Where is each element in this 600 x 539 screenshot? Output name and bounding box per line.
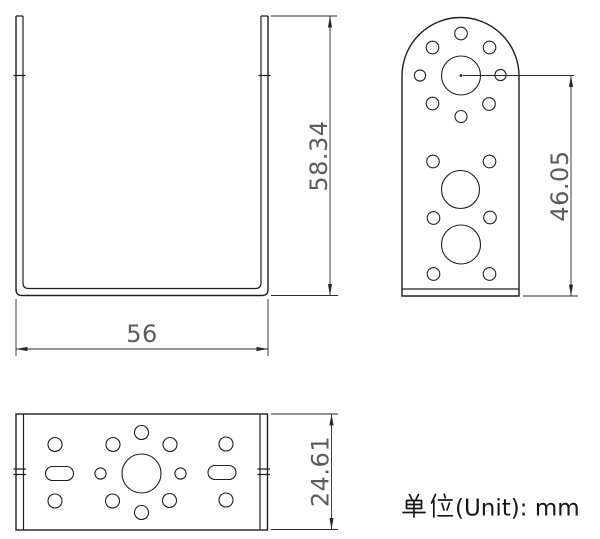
small-hole	[455, 111, 467, 123]
arrow-down-icon	[328, 284, 332, 296]
small-hole	[163, 494, 177, 508]
small-hole	[135, 426, 149, 440]
small-hole	[219, 437, 233, 451]
side-top-hole-pattern	[414, 27, 506, 122]
slot-hole	[208, 466, 236, 480]
arrow-up-icon	[569, 76, 573, 88]
drawing-svg: 58.34 56	[0, 0, 600, 539]
large-hole	[442, 171, 480, 209]
small-hole	[414, 70, 425, 81]
top-depth-dimension: 24.61	[271, 414, 338, 530]
unit-cjk-char-wei	[432, 494, 453, 517]
unit-note: (Unit): mm	[403, 494, 580, 521]
technical-drawing-sheet: 58.34 56	[0, 0, 600, 539]
small-hole	[95, 468, 106, 479]
small-hole	[106, 438, 120, 452]
small-hole	[484, 211, 497, 224]
large-hole	[122, 454, 161, 493]
front-inner-outline	[23, 16, 261, 289]
front-view	[14, 16, 271, 296]
top-wall-inner-lines	[24, 414, 261, 530]
side-height-dimension: 46.05	[463, 76, 578, 297]
side-outline	[402, 18, 519, 297]
front-width-dimension: 56	[16, 299, 268, 356]
side-height-value: 46.05	[546, 150, 574, 221]
small-hole	[48, 438, 62, 452]
small-hole	[426, 41, 439, 54]
top-outer-outline	[16, 414, 268, 530]
front-height-value: 58.34	[305, 120, 333, 191]
top-depth-value: 24.61	[307, 436, 335, 507]
small-hole	[483, 155, 496, 168]
small-hole	[427, 268, 440, 281]
small-hole	[175, 468, 186, 479]
arrow-left-icon	[16, 347, 28, 351]
small-hole	[219, 493, 233, 507]
arrow-down-icon	[569, 285, 573, 297]
top-side-holes	[46, 437, 237, 508]
side-view	[402, 18, 519, 297]
front-height-dimension: 58.34	[271, 16, 338, 296]
top-view	[14, 414, 271, 530]
unit-cjk-char-dan	[403, 495, 425, 518]
center-mark	[460, 74, 463, 77]
arrow-down-icon	[329, 518, 333, 530]
small-hole	[135, 506, 149, 520]
front-outer-outline	[16, 16, 268, 296]
small-hole	[483, 98, 496, 111]
arrow-right-icon	[257, 347, 269, 351]
arrow-up-icon	[328, 16, 332, 28]
slot-hole	[46, 467, 74, 481]
small-hole	[427, 155, 440, 168]
top-center-hole-pattern	[95, 426, 186, 520]
small-hole	[483, 41, 496, 54]
small-hole	[163, 438, 177, 452]
unit-note-text: (Unit): mm	[455, 496, 580, 522]
small-hole	[495, 69, 506, 80]
small-hole	[455, 27, 468, 40]
large-hole	[442, 225, 481, 264]
small-hole	[427, 212, 440, 225]
side-lower-hole-pattern	[427, 155, 497, 280]
small-hole	[483, 268, 496, 281]
arrow-up-icon	[329, 414, 333, 426]
small-hole	[48, 494, 62, 508]
small-hole	[426, 97, 439, 110]
front-width-value: 56	[126, 320, 158, 348]
top-bend-tick-marks	[14, 469, 271, 475]
small-hole	[106, 494, 120, 508]
